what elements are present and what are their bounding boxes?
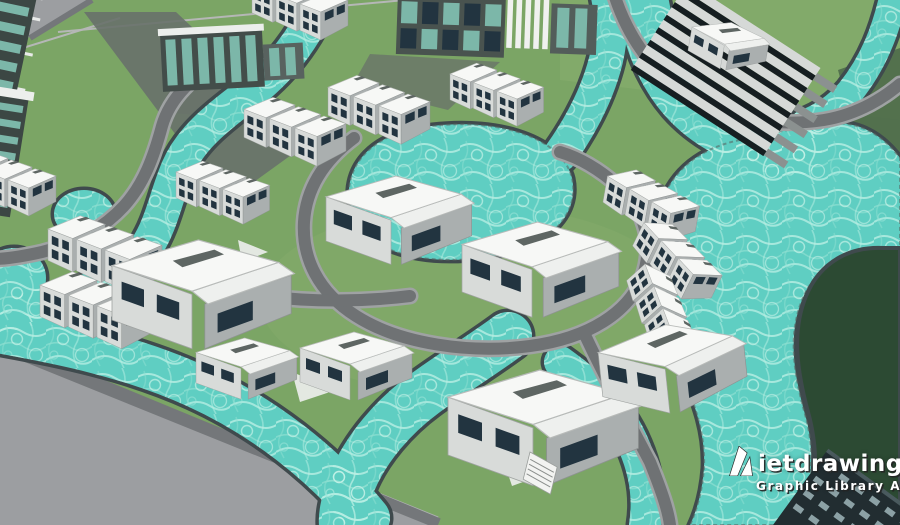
- render-canvas: ietdrawing Graphic Library Architecture: [0, 0, 900, 525]
- vietdrawing-logo-icon: [726, 446, 756, 476]
- watermark-brand: ietdrawing: [758, 453, 900, 476]
- watermark-subtitle: Graphic Library Architecture: [726, 479, 900, 493]
- watermark: ietdrawing Graphic Library Architecture: [726, 446, 900, 493]
- tower-topcenter: [394, 0, 598, 61]
